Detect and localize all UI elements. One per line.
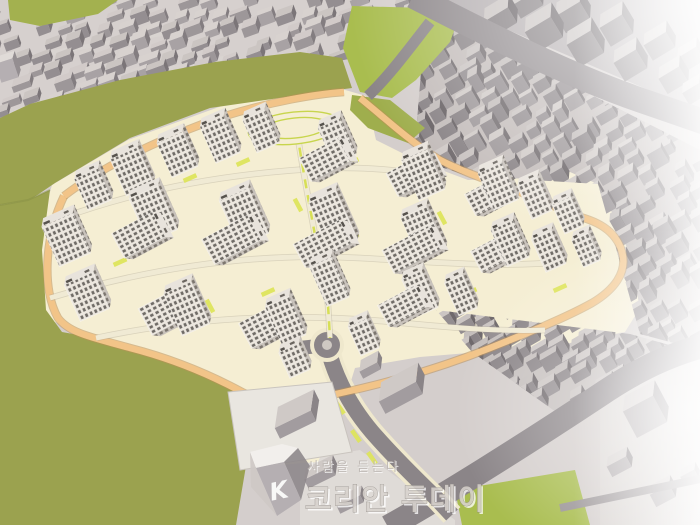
svg-text:코리안 투데이: 코리안 투데이 <box>305 482 486 516</box>
watermark-tagline: 사람을 듣는다 사람을 듣는다 <box>307 460 401 476</box>
aerial-rendering: K 사람을 듣는다 사람을 듣는다 코리안 투데이 코리안 투데이 <box>0 0 700 525</box>
watermark-brand: 코리안 투데이 코리안 투데이 <box>305 482 488 518</box>
scene-svg: K 사람을 듣는다 사람을 듣는다 코리안 투데이 코리안 투데이 <box>0 0 700 525</box>
light-wash <box>0 0 700 525</box>
svg-text:사람을 듣는다: 사람을 듣는다 <box>307 460 400 475</box>
